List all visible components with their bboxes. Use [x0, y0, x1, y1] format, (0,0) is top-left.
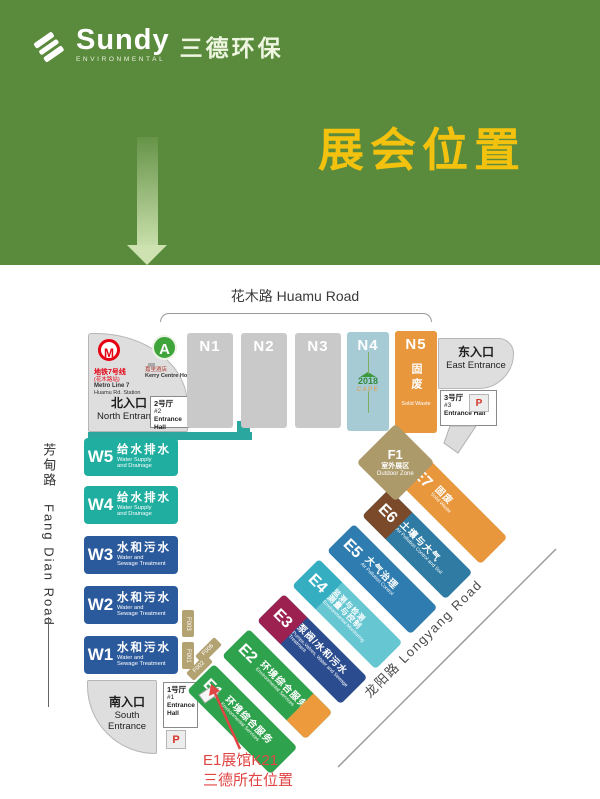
- metro-line-cn: 地铁7号线: [94, 369, 146, 377]
- annotation-line1: E1展馆K21: [203, 751, 293, 771]
- metro-info: 地铁7号线 (花木路站) Metro Line 7 Huamu Rd. Stat…: [94, 369, 146, 397]
- road-label-fangdian: 芳甸路 Fang Dian Road: [41, 443, 55, 626]
- sundy-logo: Sundy ENVIRONMENTAL 三德环保: [38, 26, 284, 63]
- south-entrance-area: 南入口 South Entrance: [87, 680, 157, 754]
- huamu-road-bracket: [160, 313, 432, 322]
- hotel-info: 嘉里酒店 Kerry Centre Hotel: [145, 367, 191, 380]
- hall-W5: W5 给水排水Water Supplyand Drainage: [84, 438, 178, 476]
- hall-W1: W1 水和污水Water andSewage Treatment: [84, 636, 178, 674]
- shanghai-metro-icon: M: [98, 339, 120, 361]
- parking-badge-east: P: [469, 394, 489, 412]
- down-arrow-icon: [127, 137, 167, 265]
- hall-W2: W2 水和污水Water andSewage Treatment: [84, 586, 178, 624]
- kerry-hotel-marker-icon: A: [152, 335, 177, 360]
- brand-name-cn: 三德环保: [180, 29, 284, 63]
- cape-2018-badge: 2018 CAPE: [347, 352, 389, 413]
- sundy-logo-icon: [32, 24, 75, 67]
- venue-map: 花木路 Huamu Road 芳甸路 Fang Dian Road M A 地铁…: [0, 265, 600, 799]
- page-title: 展会位置: [318, 114, 526, 180]
- brand-subtitle: ENVIRONMENTAL: [76, 56, 170, 63]
- hall-N2: N2: [241, 333, 287, 428]
- logo-wordmark: Sundy ENVIRONMENTAL: [76, 26, 170, 63]
- gate-label-F001: F001: [182, 642, 194, 669]
- hall-W3: W3 水和污水Water andSewage Treatment: [84, 536, 178, 574]
- annotation-line2: 三德所在位置: [203, 771, 293, 791]
- hotel-name-en: Kerry Centre Hotel: [145, 373, 191, 379]
- gate-label-F003: F003: [182, 610, 194, 637]
- hall-N1: N1: [187, 333, 233, 428]
- east-entrance-area: 东入口 East Entrance: [438, 338, 514, 389]
- hero-banner: Sundy ENVIRONMENTAL 三德环保 展会位置: [0, 0, 600, 265]
- road-label-fangdian-en: Fang Dian Road: [41, 504, 56, 627]
- hall-N5: N5 固废 Solid Waste: [395, 331, 437, 433]
- metro-line-en: Metro Line 7: [94, 383, 146, 390]
- fangdian-road-line: [48, 617, 49, 707]
- hall-N3: N3: [295, 333, 341, 428]
- road-label-huamu: 花木路 Huamu Road: [150, 286, 440, 306]
- east-hall-connector: [444, 426, 476, 453]
- road-label-fangdian-cn: 芳甸路: [41, 443, 56, 488]
- hall-N4: N4 2018 CAPE: [347, 332, 389, 431]
- parking-badge-south: P: [166, 730, 186, 749]
- slide: Sundy ENVIRONMENTAL 三德环保 展会位置 花木路 Huamu …: [0, 0, 600, 799]
- brand-name: Sundy: [76, 26, 170, 55]
- location-annotation: E1展馆K21 三德所在位置: [203, 751, 293, 792]
- hall-W4: W4 给水排水Water Supplyand Drainage: [84, 486, 178, 524]
